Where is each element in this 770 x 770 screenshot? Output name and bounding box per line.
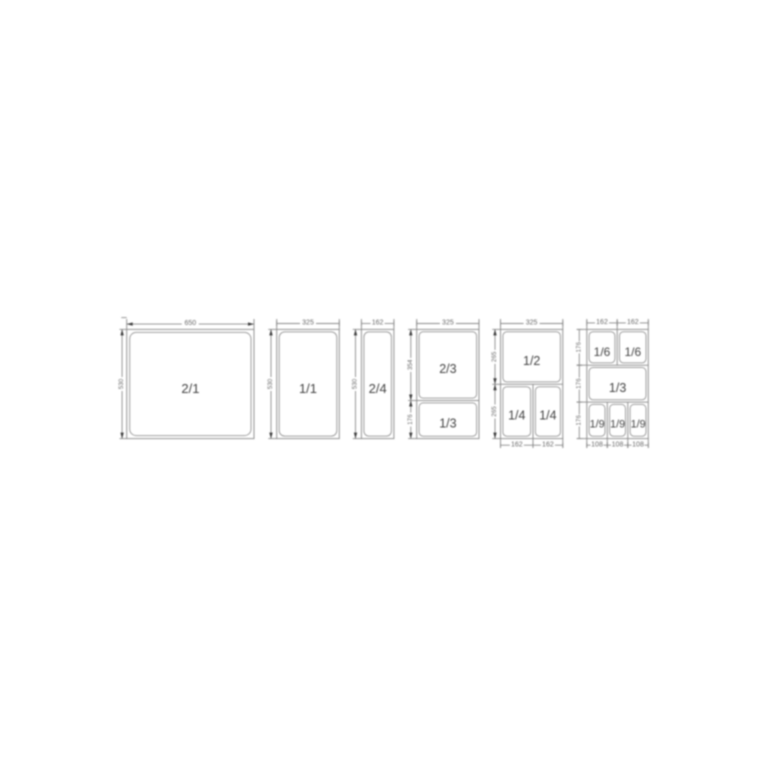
- svg-text:162: 162: [596, 319, 608, 326]
- svg-text:2/1: 2/1: [181, 381, 199, 396]
- svg-text:1/6: 1/6: [594, 345, 611, 359]
- svg-text:162: 162: [542, 441, 554, 448]
- svg-text:108: 108: [632, 441, 644, 448]
- svg-text:354: 354: [407, 359, 414, 370]
- svg-text:162: 162: [627, 319, 639, 326]
- svg-text:1/3: 1/3: [439, 416, 456, 430]
- svg-text:325: 325: [442, 320, 454, 327]
- svg-text:530: 530: [118, 378, 125, 389]
- svg-text:1/2: 1/2: [523, 354, 540, 368]
- svg-text:1/9: 1/9: [631, 418, 646, 430]
- svg-text:1/9: 1/9: [590, 418, 605, 430]
- svg-text:2/3: 2/3: [439, 362, 456, 376]
- svg-text:108: 108: [591, 441, 603, 448]
- svg-text:1/9: 1/9: [610, 418, 625, 430]
- svg-text:162: 162: [372, 320, 384, 327]
- svg-text:1/4: 1/4: [508, 409, 525, 423]
- svg-text:176: 176: [575, 415, 582, 426]
- svg-text:162: 162: [511, 441, 523, 448]
- svg-text:2/4: 2/4: [369, 381, 387, 396]
- svg-text:1/1: 1/1: [299, 381, 317, 396]
- svg-text:176: 176: [575, 378, 582, 389]
- svg-text:325: 325: [526, 320, 538, 327]
- svg-text:325: 325: [302, 320, 314, 327]
- svg-text:176: 176: [407, 414, 414, 425]
- svg-text:265: 265: [491, 351, 498, 362]
- svg-text:1/4: 1/4: [539, 409, 556, 423]
- svg-text:1/3: 1/3: [609, 381, 626, 395]
- svg-text:108: 108: [612, 441, 624, 448]
- svg-text:530: 530: [267, 378, 274, 389]
- svg-text:265: 265: [491, 406, 498, 417]
- svg-text:176: 176: [575, 342, 582, 353]
- svg-text:530: 530: [352, 378, 359, 389]
- svg-text:1/6: 1/6: [624, 345, 641, 359]
- svg-text:650: 650: [184, 320, 196, 327]
